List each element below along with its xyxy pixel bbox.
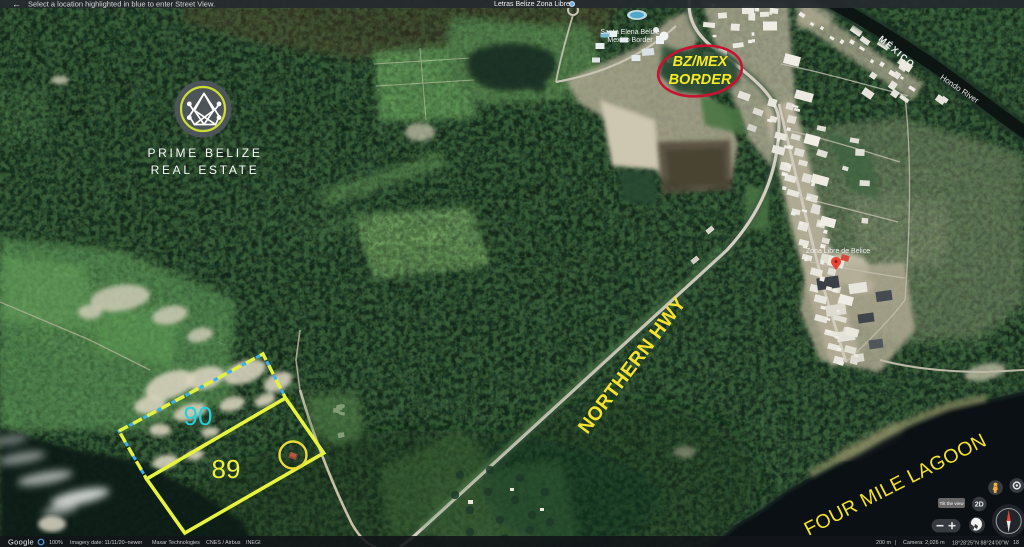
- svg-text:Select a location highlighted: Select a location highlighted in blue to…: [28, 0, 215, 9]
- svg-text:90: 90: [184, 401, 213, 431]
- svg-text:2D: 2D: [975, 502, 984, 509]
- svg-text:Letras Belize Zona Libre: Letras Belize Zona Libre: [494, 1, 570, 8]
- svg-text:BZ/MEX: BZ/MEX: [673, 54, 729, 70]
- svg-text:INEGI: INEGI: [246, 540, 261, 546]
- svg-text:Santa Elena Belize: Santa Elena Belize: [600, 29, 659, 36]
- svg-text:Zona Libre de Belice: Zona Libre de Belice: [806, 248, 870, 255]
- svg-text:Camera: 2,026 m: Camera: 2,026 m: [903, 540, 945, 546]
- svg-text:Maxar Technologies: Maxar Technologies: [152, 540, 200, 546]
- svg-text:←: ←: [12, 0, 21, 9]
- svg-text:Tilt the view: Tilt the view: [939, 501, 964, 506]
- svg-text:100%: 100%: [49, 540, 63, 546]
- svg-text:89: 89: [212, 454, 241, 484]
- svg-text:Mexico Border: Mexico Border: [607, 37, 653, 44]
- svg-text:|: |: [895, 540, 896, 546]
- svg-text:REAL ESTATE: REAL ESTATE: [151, 163, 260, 177]
- svg-text:PRIME BELIZE: PRIME BELIZE: [147, 146, 262, 160]
- svg-text:18: 18: [1013, 540, 1019, 546]
- svg-text:CNES / Airbus: CNES / Airbus: [206, 540, 241, 546]
- svg-text:200 m: 200 m: [876, 540, 891, 546]
- svg-text:BORDER: BORDER: [669, 72, 732, 88]
- svg-text:18°28'25"N 88°24'00"W: 18°28'25"N 88°24'00"W: [952, 541, 1010, 547]
- svg-text:Google: Google: [8, 538, 34, 547]
- svg-text:Imagery date: 11/11/20–newer: Imagery date: 11/11/20–newer: [70, 540, 143, 546]
